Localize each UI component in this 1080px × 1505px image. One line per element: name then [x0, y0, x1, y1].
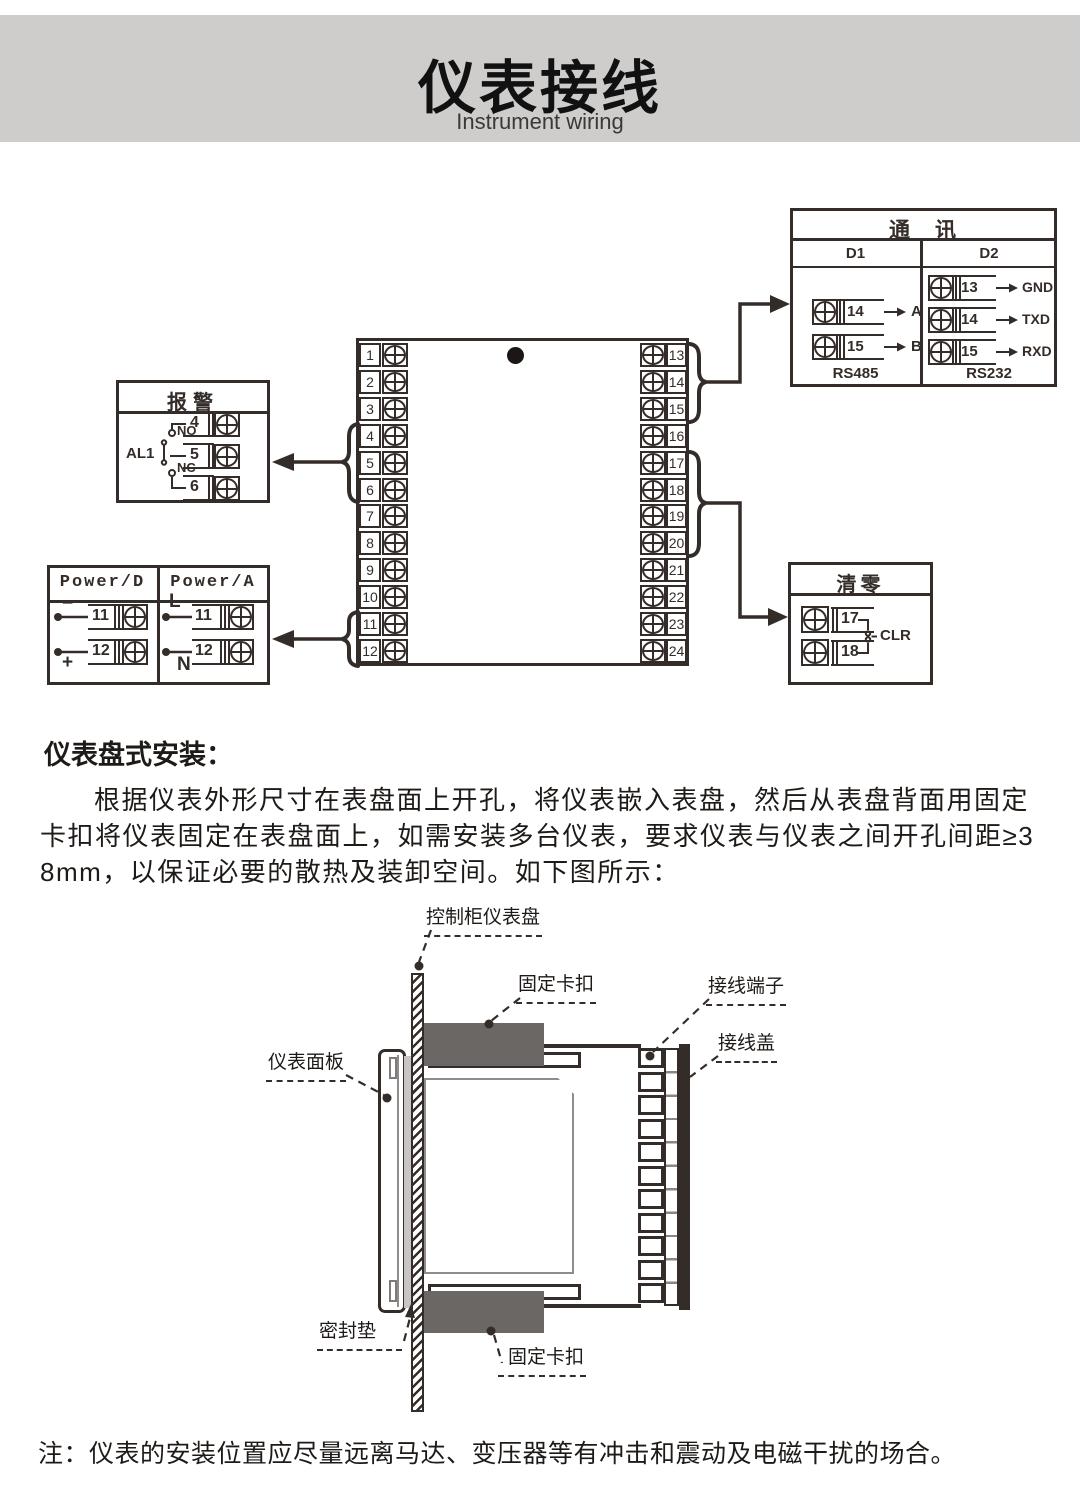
label-front-panel: 仪表面板 — [266, 1047, 346, 1082]
dot-cabinet-panel — [415, 962, 424, 971]
dot-terminal — [646, 1052, 655, 1061]
clear-contact-top — [866, 631, 870, 635]
leader-gasket — [404, 1314, 411, 1341]
label-cabinet-panel: 控制柜仪表盘 — [424, 902, 542, 937]
brace-alarm — [342, 424, 358, 502]
clear-contact-bottom — [866, 637, 870, 641]
comm-d1-arrowtip-1 — [897, 308, 906, 317]
power-d-rails-2 — [88, 640, 122, 664]
brace-clear — [690, 452, 706, 556]
label-fixing-clip-bottom: 固定卡扣 — [498, 1342, 586, 1377]
clear-wire-18 — [858, 643, 868, 653]
comm-d1-arrowtip-2 — [897, 343, 906, 352]
comm-d2-rails-3 — [954, 340, 996, 364]
alarm-arrowhead — [272, 453, 294, 471]
brace-power — [342, 612, 358, 666]
label-sealing-gasket: 密封垫 — [317, 1316, 402, 1351]
clear-arrowhead — [768, 608, 788, 626]
alarm-terminal-rails-2 — [183, 444, 214, 468]
clear-connector-line — [706, 503, 772, 617]
power-arrowhead — [272, 630, 294, 648]
comm-d2-arrowtip-2 — [1009, 316, 1018, 325]
comm-d1-rails-1 — [838, 300, 884, 324]
leader-front-panel — [346, 1075, 384, 1095]
alarm-no-wire — [172, 424, 186, 429]
label-wiring-terminal: 接线端子 — [706, 971, 786, 1006]
alarm-pole-bottom — [162, 460, 166, 464]
manual-page: 仪表接线 Instrument wiring 报警 AL1 NO NC Powe… — [0, 0, 1080, 1505]
leader-terminal — [653, 999, 709, 1052]
clear-wire-17 — [858, 620, 868, 630]
alarm-nc-contact — [169, 470, 175, 476]
comm-arrowhead — [770, 295, 790, 313]
comm-d1-rails-2 — [838, 335, 884, 359]
power-dot-3 — [162, 613, 170, 621]
dot-front-panel — [383, 1094, 392, 1103]
power-dot-1 — [54, 613, 62, 621]
gasket-arrowhead — [405, 1304, 415, 1318]
alarm-pole-top — [162, 440, 166, 444]
alarm-no-contact — [169, 430, 175, 436]
alarm-terminal-rails-1 — [183, 412, 214, 436]
power-a-rails-2 — [192, 640, 228, 664]
dot-clip-bottom — [487, 1327, 496, 1336]
label-wiring-cover: 接线盖 — [716, 1028, 777, 1063]
diagram-lines — [0, 0, 1080, 1505]
power-dot-4 — [162, 648, 170, 656]
alarm-terminal-rails-3 — [183, 476, 214, 500]
brace-comm — [690, 344, 706, 422]
comm-d2-rails-1 — [954, 276, 996, 300]
dot-clip-top — [485, 1020, 494, 1029]
power-d-rails-1 — [88, 605, 122, 629]
label-fixing-clip-top: 固定卡扣 — [516, 969, 596, 1004]
power-a-rails-1 — [192, 605, 228, 629]
power-lead-wires — [58, 617, 192, 652]
leader-cover — [690, 1056, 718, 1077]
comm-d2-arrowtip-1 — [1009, 284, 1018, 293]
power-dot-2 — [54, 648, 62, 656]
comm-connector-line — [706, 304, 774, 382]
alarm-nc-wire — [172, 477, 186, 488]
comm-d2-rails-2 — [954, 308, 996, 332]
comm-d2-arrowtip-3 — [1009, 348, 1018, 357]
